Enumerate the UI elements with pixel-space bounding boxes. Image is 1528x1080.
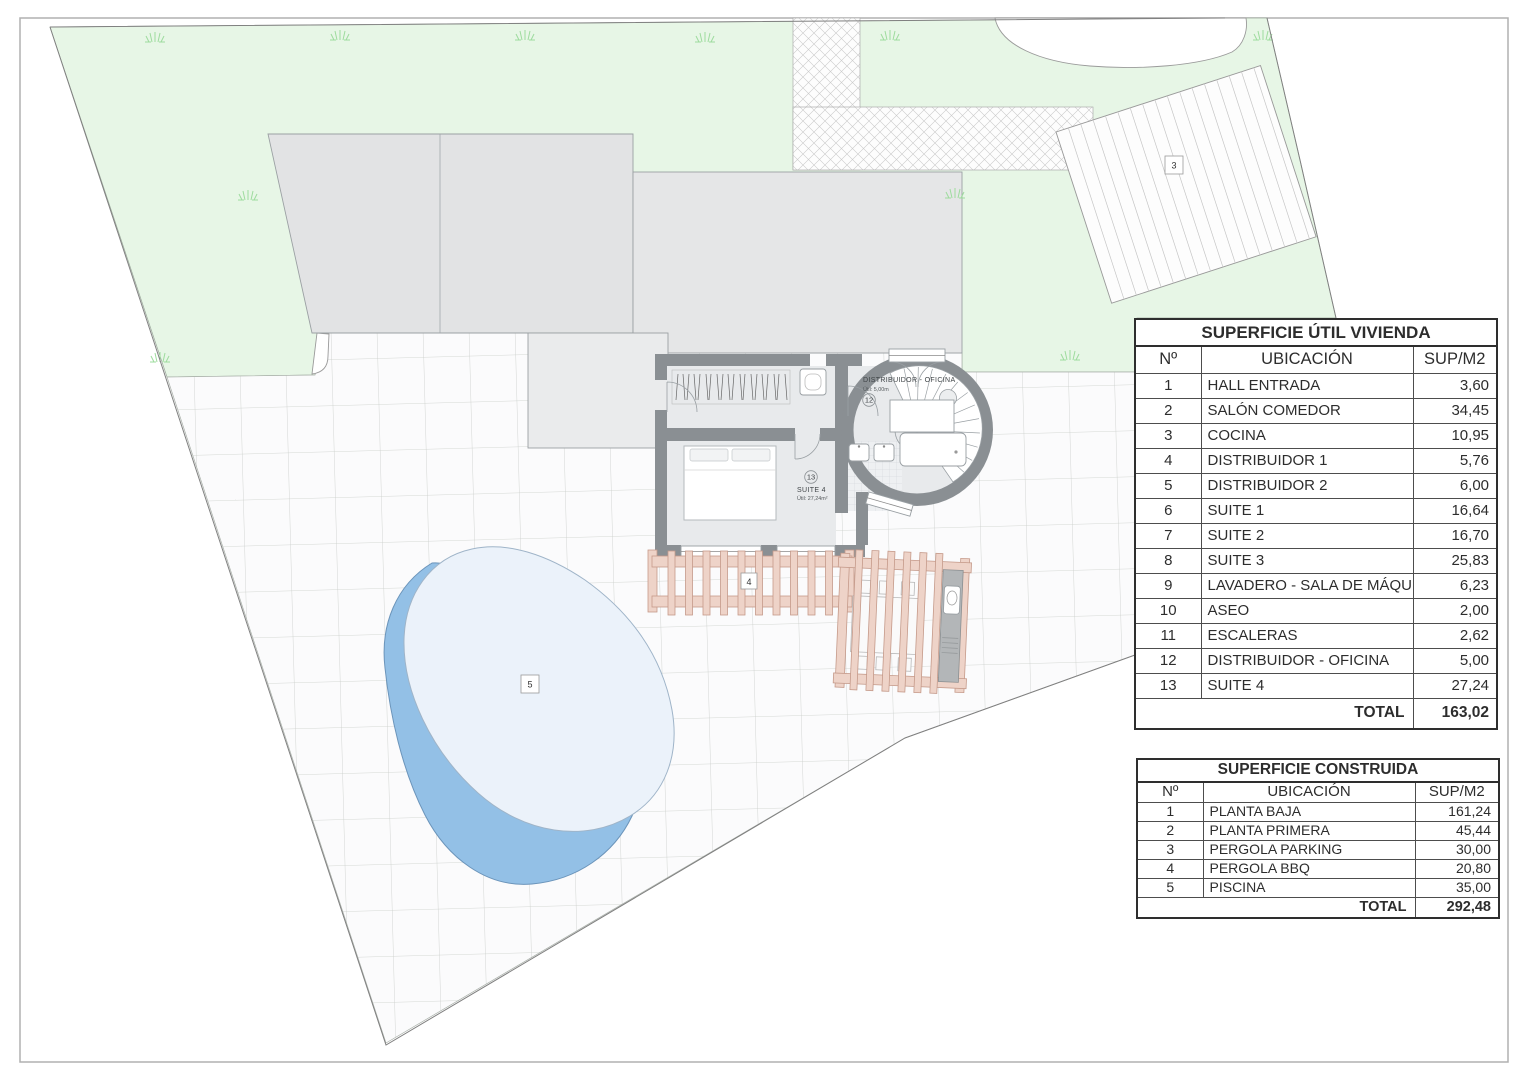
area-marker-pool: 5 xyxy=(521,675,539,693)
suite-room-name: SUITE 4 xyxy=(797,487,826,494)
toilet-icon xyxy=(800,369,826,395)
area-marker-pergola: 4 xyxy=(741,573,757,589)
cell-no: 3 xyxy=(1137,840,1203,859)
cell-sup: 6,23 xyxy=(1413,573,1497,598)
cell-ubicacion: SUITE 1 xyxy=(1201,498,1413,523)
table-row: 10ASEO2,00 xyxy=(1135,598,1497,623)
cell-sup: 45,44 xyxy=(1415,821,1499,840)
table-title: SUPERFICIE ÚTIL VIVIENDA xyxy=(1135,319,1497,346)
table-row: 3PERGOLA PARKING30,00 xyxy=(1137,840,1499,859)
table-row: 12DISTRIBUIDOR - OFICINA5,00 xyxy=(1135,648,1497,673)
cell-ubicacion: LAVADERO - SALA DE MÁQUINAS xyxy=(1201,573,1413,598)
table-superficie-construida: SUPERFICIE CONSTRUIDA Nº UBICACIÓN SUP/M… xyxy=(1136,758,1500,919)
cell-sup: 34,45 xyxy=(1413,398,1497,423)
cell-sup: 25,83 xyxy=(1413,548,1497,573)
table-row: 6SUITE 116,64 xyxy=(1135,498,1497,523)
cell-ubicacion: ESCALERAS xyxy=(1201,623,1413,648)
col-header-no: Nº xyxy=(1135,346,1201,373)
cell-ubicacion: PLANTA BAJA xyxy=(1203,802,1415,821)
cell-sup: 16,64 xyxy=(1413,498,1497,523)
tower-room-area: Útil: 5,00m xyxy=(863,386,889,393)
cell-ubicacion: PERGOLA PARKING xyxy=(1203,840,1415,859)
cell-ubicacion: SUITE 2 xyxy=(1201,523,1413,548)
table-row: 3COCINA10,95 xyxy=(1135,423,1497,448)
table-row: 4DISTRIBUIDOR 15,76 xyxy=(1135,448,1497,473)
cell-no: 9 xyxy=(1135,573,1201,598)
office-desk xyxy=(890,400,954,432)
cell-ubicacion: PERGOLA BBQ xyxy=(1203,859,1415,878)
col-header-sup: SUP/M2 xyxy=(1413,346,1497,373)
table-row: 4PERGOLA BBQ20,80 xyxy=(1137,859,1499,878)
suite-number: 13 xyxy=(807,473,815,482)
cell-no: 5 xyxy=(1137,878,1203,897)
tower-room-name: DISTRIBUIDOR - OFICINA xyxy=(863,377,955,384)
cell-sup: 5,00 xyxy=(1413,648,1497,673)
cell-sup: 10,95 xyxy=(1413,423,1497,448)
cell-ubicacion: SALÓN COMEDOR xyxy=(1201,398,1413,423)
col-header-sup: SUP/M2 xyxy=(1415,782,1499,802)
table-row: 5DISTRIBUIDOR 26,00 xyxy=(1135,473,1497,498)
cell-sup: 2,62 xyxy=(1413,623,1497,648)
cell-no: 2 xyxy=(1137,821,1203,840)
table-title: SUPERFICIE CONSTRUIDA xyxy=(1137,759,1499,782)
svg-text:4: 4 xyxy=(746,577,751,587)
cell-no: 4 xyxy=(1137,859,1203,878)
cell-ubicacion: SUITE 3 xyxy=(1201,548,1413,573)
roof-building-a xyxy=(268,134,633,333)
table-row: 5PISCINA35,00 xyxy=(1137,878,1499,897)
cell-ubicacion: SUITE 4 xyxy=(1201,673,1413,698)
cell-sup: 16,70 xyxy=(1413,523,1497,548)
cell-sup: 27,24 xyxy=(1413,673,1497,698)
cell-ubicacion: DISTRIBUIDOR 1 xyxy=(1201,448,1413,473)
cell-sup: 35,00 xyxy=(1415,878,1499,897)
table-row: 2SALÓN COMEDOR34,45 xyxy=(1135,398,1497,423)
cell-sup: 3,60 xyxy=(1413,373,1497,398)
bed-icon xyxy=(684,446,776,520)
cell-sup: 20,80 xyxy=(1415,859,1499,878)
suite-room-area: Útil: 27,24m² xyxy=(797,495,828,502)
table-row: 9LAVADERO - SALA DE MÁQUINAS6,23 xyxy=(1135,573,1497,598)
svg-text:5: 5 xyxy=(527,680,532,690)
cell-no: 11 xyxy=(1135,623,1201,648)
cell-ubicacion: DISTRIBUIDOR 2 xyxy=(1201,473,1413,498)
cell-sup: 161,24 xyxy=(1415,802,1499,821)
cell-no: 1 xyxy=(1135,373,1201,398)
cell-ubicacion: HALL ENTRADA xyxy=(1201,373,1413,398)
plan-sheet: DISTRIBUIDOR - OFICINA Útil: 5,00m 12 13… xyxy=(0,0,1528,1080)
area-marker-parking: 3 xyxy=(1165,156,1183,174)
cell-no: 8 xyxy=(1135,548,1201,573)
table-row: 13SUITE 427,24 xyxy=(1135,673,1497,698)
total-value: 163,02 xyxy=(1413,698,1497,729)
table-row: 1HALL ENTRADA3,60 xyxy=(1135,373,1497,398)
cell-ubicacion: PLANTA PRIMERA xyxy=(1203,821,1415,840)
roof-annex xyxy=(528,333,668,448)
roof-ground-floor xyxy=(633,172,962,353)
table-row: 1PLANTA BAJA161,24 xyxy=(1137,802,1499,821)
cell-ubicacion: DISTRIBUIDOR - OFICINA xyxy=(1201,648,1413,673)
cell-sup: 30,00 xyxy=(1415,840,1499,859)
cell-sup: 6,00 xyxy=(1413,473,1497,498)
cell-ubicacion: COCINA xyxy=(1201,423,1413,448)
col-header-ubicacion: UBICACIÓN xyxy=(1203,782,1415,802)
table-row: 7SUITE 216,70 xyxy=(1135,523,1497,548)
bbq-sink-icon xyxy=(943,586,960,615)
cell-ubicacion: ASEO xyxy=(1201,598,1413,623)
cell-no: 5 xyxy=(1135,473,1201,498)
table-total-row: TOTAL 163,02 xyxy=(1135,698,1497,729)
col-header-ubicacion: UBICACIÓN xyxy=(1201,346,1413,373)
tower-number: 12 xyxy=(865,396,873,405)
total-value: 292,48 xyxy=(1415,897,1499,918)
cell-no: 1 xyxy=(1137,802,1203,821)
shower xyxy=(900,433,966,466)
cell-ubicacion: PISCINA xyxy=(1203,878,1415,897)
svg-text:3: 3 xyxy=(1171,161,1176,171)
table-row: 8SUITE 325,83 xyxy=(1135,548,1497,573)
cell-no: 4 xyxy=(1135,448,1201,473)
cell-no: 13 xyxy=(1135,673,1201,698)
cell-no: 10 xyxy=(1135,598,1201,623)
table-row: 2PLANTA PRIMERA45,44 xyxy=(1137,821,1499,840)
table-superficie-util: SUPERFICIE ÚTIL VIVIENDA Nº UBICACIÓN SU… xyxy=(1134,318,1498,730)
total-label: TOTAL xyxy=(1135,698,1413,729)
cell-sup: 5,76 xyxy=(1413,448,1497,473)
table-total-row: TOTAL 292,48 xyxy=(1137,897,1499,918)
cell-no: 2 xyxy=(1135,398,1201,423)
table-row: 11ESCALERAS2,62 xyxy=(1135,623,1497,648)
cell-no: 7 xyxy=(1135,523,1201,548)
cell-sup: 2,00 xyxy=(1413,598,1497,623)
col-header-no: Nº xyxy=(1137,782,1203,802)
cell-no: 6 xyxy=(1135,498,1201,523)
total-label: TOTAL xyxy=(1137,897,1415,918)
cell-no: 3 xyxy=(1135,423,1201,448)
cell-no: 12 xyxy=(1135,648,1201,673)
